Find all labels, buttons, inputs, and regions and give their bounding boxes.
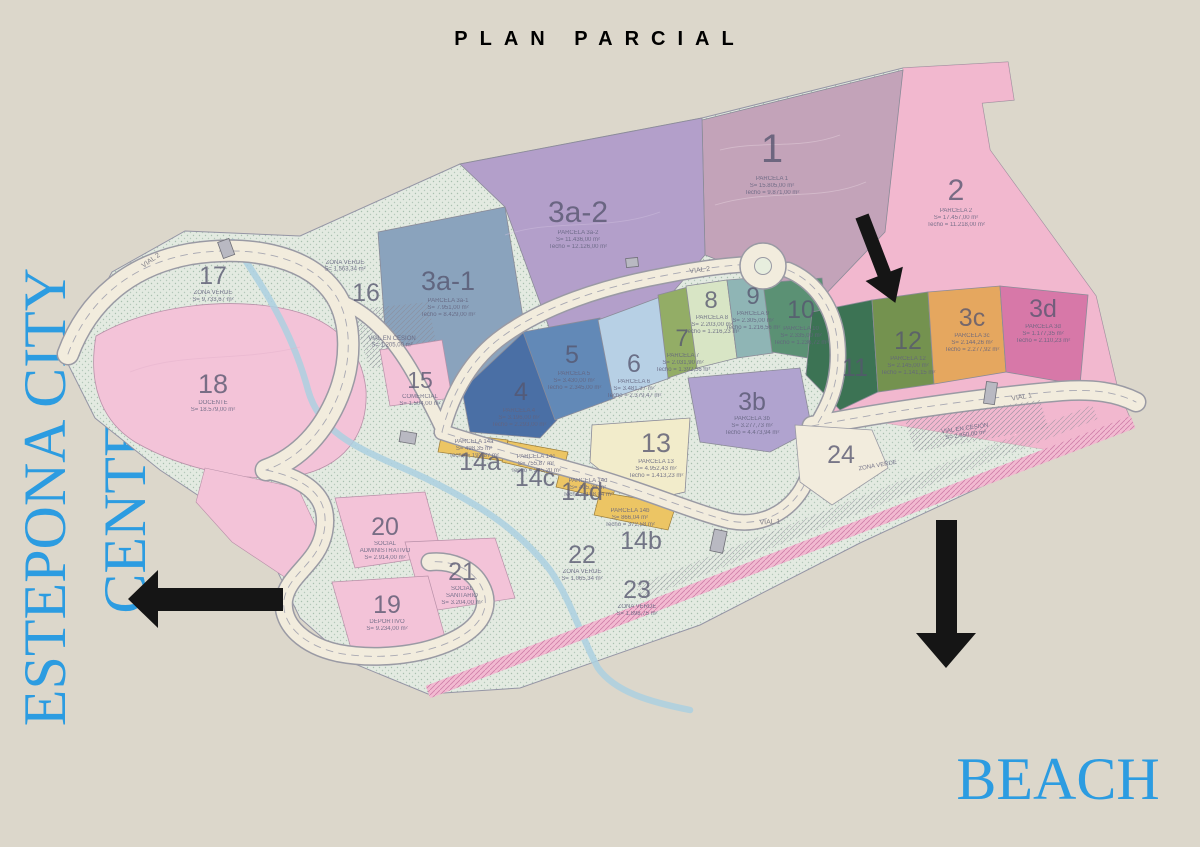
svg-text:ZONA VERDE: ZONA VERDE [194,290,233,296]
svg-text:ZONA VERDE: ZONA VERDE [618,604,657,610]
svg-text:Techo = 12.126,00 m²: Techo = 12.126,00 m² [549,244,607,250]
parcel-13-number: 13 [641,428,671,458]
parcel-4-number: 4 [514,378,528,406]
svg-text:Techo = 2.277,92 m²: Techo = 2.277,92 m² [945,347,1000,353]
svg-text:Techo = 1.141,15 m²: Techo = 1.141,15 m² [881,370,936,376]
svg-text:COMERCIAL: COMERCIAL [402,394,438,400]
svg-text:PARCELA 6: PARCELA 6 [618,379,651,385]
parcel-plan-map: 1 2 3a-2 3a-1 3b 3c 3d 4 5 6 7 8 9 10 11… [0,0,1200,843]
roundabout-inner [755,258,772,275]
svg-text:Techo = 1.216,56 m²: Techo = 1.216,56 m² [726,325,781,331]
svg-text:Techo = 1.413,23 m²: Techo = 1.413,23 m² [629,473,684,479]
parcel-17-number: 17 [199,262,227,290]
parcel-21-number: 21 [448,558,476,586]
svg-text:PARCELA 3c: PARCELA 3c [954,333,989,339]
svg-text:PARCELA 7: PARCELA 7 [667,353,700,359]
svg-text:PARCELA 9: PARCELA 9 [737,311,770,317]
svg-text:PARCELA 3d: PARCELA 3d [1025,324,1061,330]
svg-text:PARCELA 14c: PARCELA 14c [517,454,556,460]
svg-text:PARCELA 14a: PARCELA 14a [455,439,495,445]
parcel-9-number: 9 [746,283,759,310]
svg-text:S= 405,32 m²: S= 405,32 m² [570,485,606,491]
parcel-1-number: 1 [761,127,783,171]
svg-text:S= 2.914,00 m²: S= 2.914,00 m² [364,555,405,561]
parcel-11-number: 11 [842,354,868,382]
svg-text:PARCELA 3b: PARCELA 3b [734,416,770,422]
svg-text:SOCIAL: SOCIAL [374,541,397,547]
svg-text:S= 9.733,67 m²: S= 9.733,67 m² [192,297,233,303]
arrow-to-beach [916,520,976,668]
svg-text:Techo = 295,20 m²: Techo = 295,20 m² [511,468,561,474]
parcel-15-number: 15 [407,367,433,393]
parcel-3d-number: 3d [1029,295,1057,323]
parcel-6-number: 6 [627,350,641,378]
svg-text:S= 1.898,75 m²: S= 1.898,75 m² [616,611,657,617]
svg-text:PARCELA 5: PARCELA 5 [558,371,591,377]
svg-text:PARCELA 10: PARCELA 10 [783,326,819,332]
svg-text:S= 1.205,00 m²: S= 1.205,00 m² [371,343,412,349]
parcel-20-number: 20 [371,513,399,541]
svg-text:S= 2.335,00 m²: S= 2.335,00 m² [780,333,821,339]
svg-text:Techo = 2.293,00 m²: Techo = 2.293,00 m² [492,422,547,428]
svg-text:S= 3.430,00 m²: S= 3.430,00 m² [553,378,594,384]
svg-text:Techo = 4.473,94 m²: Techo = 4.473,94 m² [725,430,780,436]
svg-text:PARCELA 2: PARCELA 2 [940,208,973,214]
parcel-16-number: 16 [352,279,380,307]
svg-text:ZONA VERDE: ZONA VERDE [563,569,602,575]
svg-text:S= 11.436,00 m²: S= 11.436,00 m² [556,237,600,243]
svg-text:S= 18.579,00 m²: S= 18.579,00 m² [191,407,236,413]
parcel-12-number: 12 [894,327,922,355]
svg-text:Techo = 9.871,00 m²: Techo = 9.871,00 m² [745,190,800,196]
parcel-3c-number: 3c [959,304,985,332]
svg-text:Techo = 158,04 m²: Techo = 158,04 m² [563,492,613,498]
svg-text:S= 1.065,34 m²: S= 1.065,34 m² [561,576,602,582]
svg-text:DOCENTE: DOCENTE [198,400,227,406]
svg-text:S= 9.234,00 m²: S= 9.234,00 m² [366,626,407,632]
svg-text:Techo = 2.379,47 m²: Techo = 2.379,47 m² [607,393,662,399]
svg-text:Techo = 1.392,56 m²: Techo = 1.392,56 m² [656,367,711,373]
svg-text:S= 17.457,00 m²: S= 17.457,00 m² [934,215,979,221]
parcel-5-number: 5 [565,341,579,369]
svg-text:VIAL EN CESIÓN: VIAL EN CESIÓN [368,335,415,342]
svg-text:Techo = 11.218,00 m²: Techo = 11.218,00 m² [927,222,985,228]
svg-text:Techo = 2.345,00 m²: Techo = 2.345,00 m² [547,385,602,391]
svg-text:PARCELA 1: PARCELA 1 [756,176,789,182]
svg-text:S= 7.951,00 m²: S= 7.951,00 m² [427,305,468,311]
svg-text:SOCIAL: SOCIAL [451,586,474,592]
svg-text:S= 1.563,34 m²: S= 1.563,34 m² [324,267,365,273]
parcel-14b-number: 14b [620,527,662,555]
svg-text:PARCELA 3a-2: PARCELA 3a-2 [558,230,600,236]
svg-text:DEPORTIVO: DEPORTIVO [369,619,405,625]
parcel-8-number: 8 [704,287,717,314]
svg-text:SANITARIO: SANITARIO [446,593,478,599]
svg-text:Techo = 1.236,72 m²: Techo = 1.236,72 m² [774,340,829,346]
parcel-24-number: 24 [827,441,855,469]
svg-text:PARCELA 3a-1: PARCELA 3a-1 [428,298,470,304]
svg-text:S= 2.305,00 m²: S= 2.305,00 m² [732,318,773,324]
parcel-22-number: 22 [568,541,596,569]
parcel-3a1-number: 3a-1 [421,266,475,296]
svg-text:PARCELA 13: PARCELA 13 [638,459,674,465]
svg-text:VIAL 1: VIAL 1 [759,518,780,526]
parcel-10-number: 10 [787,296,815,324]
svg-text:S= 1.504,00 m²: S= 1.504,00 m² [399,401,440,407]
svg-text:Techo = 8.429,00 m²: Techo = 8.429,00 m² [421,312,476,318]
svg-text:Techo = 193,87 m²: Techo = 193,87 m² [449,453,499,459]
arrow-to-city-center [128,570,283,628]
svg-text:S= 2.144,26 m²: S= 2.144,26 m² [951,340,992,346]
parcel-3a2-number: 3a-2 [548,196,608,229]
svg-text:S= 15.805,00 m²: S= 15.805,00 m² [750,183,795,189]
svg-text:Techo = 372,58 m²: Techo = 372,58 m² [605,522,655,528]
svg-text:S= 866,04 m²: S= 866,04 m² [612,515,648,521]
svg-text:Techo = 2.110,23 m²: Techo = 2.110,23 m² [1016,338,1070,344]
svg-text:ADMINISTRATIVO: ADMINISTRATIVO [360,548,411,554]
svg-text:S= 2.145,00 m²: S= 2.145,00 m² [887,363,928,369]
svg-text:PARCELA 12: PARCELA 12 [890,356,926,362]
svg-text:ZONA VERDE: ZONA VERDE [326,260,365,266]
svg-text:S= 498,35 m²: S= 498,35 m² [456,446,492,452]
svg-text:S= 3.277,73 m²: S= 3.277,73 m² [731,423,772,429]
svg-text:PARCELA 14b: PARCELA 14b [611,508,651,514]
svg-text:PARCELA 14d: PARCELA 14d [569,478,608,484]
parcel-3b-number: 3b [738,388,766,416]
parcel-19-number: 19 [373,591,401,619]
svg-text:S= 3.481,37 m²: S= 3.481,37 m² [613,386,654,392]
parcel-18-area [94,304,367,478]
svg-text:S= 3.204,00 m²: S= 3.204,00 m² [441,600,482,606]
svg-text:S= 1.177,35 m²: S= 1.177,35 m² [1022,331,1063,337]
parcel-18-number: 18 [198,369,228,399]
parcel-2-number: 2 [948,174,965,207]
parcel-23-number: 23 [623,576,651,604]
svg-text:S= 755,87 m²: S= 755,87 m² [518,461,554,467]
svg-text:PARCELA 8: PARCELA 8 [696,315,729,321]
svg-text:S= 2.031,90 m²: S= 2.031,90 m² [662,360,703,366]
svg-text:S= 4.952,43 m²: S= 4.952,43 m² [635,466,676,472]
svg-text:S= 3.196,00 m²: S= 3.196,00 m² [498,415,539,421]
svg-text:PARCELA 4: PARCELA 4 [503,408,536,414]
